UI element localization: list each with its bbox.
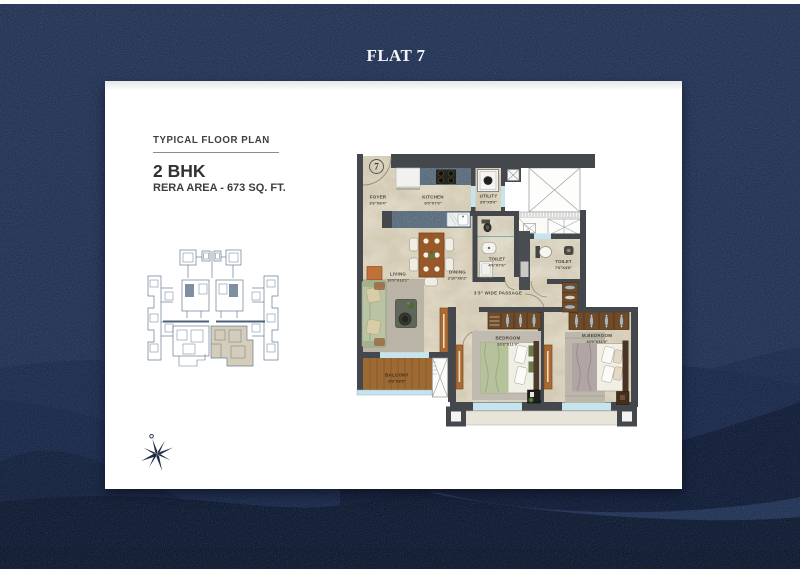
svg-text:10'0"X11'0": 10'0"X11'0" (586, 339, 608, 344)
svg-text:2'10"X6'2": 2'10"X6'2" (448, 276, 468, 281)
svg-text:TOILET: TOILET (555, 259, 572, 264)
svg-text:10'0"X13'1": 10'0"X13'1" (387, 278, 409, 283)
svg-text:4'6"X7'6": 4'6"X7'6" (488, 263, 505, 268)
svg-text:3'3" WIDE PASSAGE: 3'3" WIDE PASSAGE (474, 291, 522, 296)
svg-text:LIVING: LIVING (390, 272, 407, 277)
svg-text:3'6"X8'4": 3'6"X8'4" (369, 201, 386, 206)
svg-text:KITCHEN: KITCHEN (422, 195, 443, 200)
svg-text:M.BEDROOM: M.BEDROOM (582, 333, 612, 338)
svg-text:10'2"X11'0": 10'2"X11'0" (497, 342, 519, 347)
svg-text:BEDROOM: BEDROOM (496, 336, 521, 341)
svg-text:UTILITY: UTILITY (480, 194, 498, 199)
svg-text:FOYER: FOYER (370, 195, 387, 200)
svg-text:7: 7 (374, 162, 379, 172)
svg-text:3'0"X5'0": 3'0"X5'0" (480, 200, 497, 205)
svg-text:TOILET: TOILET (489, 257, 506, 262)
svg-text:BALCONY: BALCONY (385, 373, 409, 378)
svg-text:8'3"X3'5": 8'3"X3'5" (388, 379, 405, 384)
svg-text:DINING: DINING (449, 270, 466, 275)
svg-text:9'0"X7'0": 9'0"X7'0" (424, 201, 441, 206)
svg-text:7'6"X4'6": 7'6"X4'6" (555, 265, 572, 270)
